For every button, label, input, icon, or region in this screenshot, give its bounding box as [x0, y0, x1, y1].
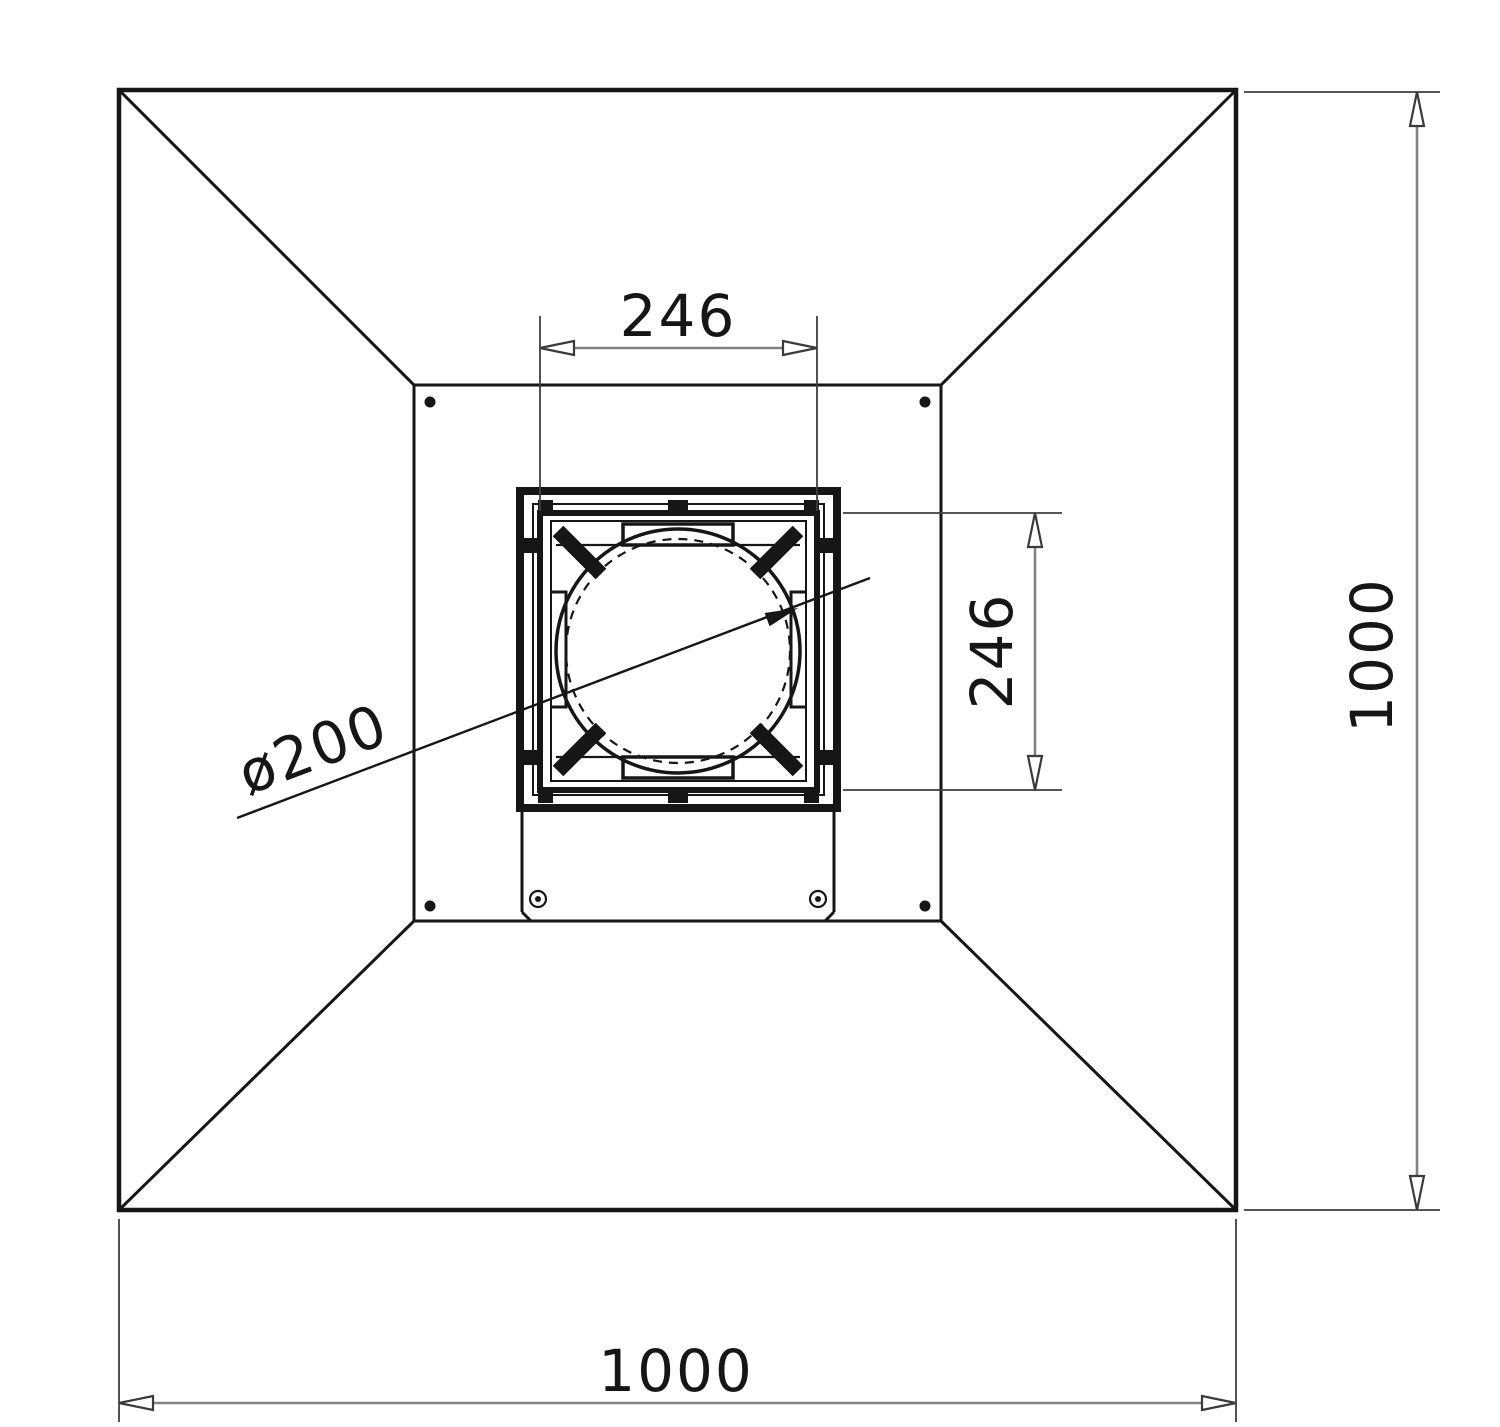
drawing-background: [0, 0, 1500, 1427]
neck-rivet-center: [815, 896, 821, 902]
clip-tab: [820, 538, 833, 553]
clip-tab: [820, 750, 833, 765]
clip-tab: [524, 538, 537, 553]
clip-tab-center-bottom: [668, 790, 688, 803]
dim-label-overall-width: 1000: [598, 1337, 754, 1405]
neck-rivet-center: [535, 896, 541, 902]
drawing-canvas: 246 246 1000 1000 ø200: [0, 0, 1500, 1427]
dim-label-overall-height: 1000: [1338, 577, 1406, 733]
clip-tab: [524, 750, 537, 765]
dim-label-inner-width: 246: [620, 282, 737, 350]
panel-screw-dot: [425, 397, 436, 408]
clip-tab-center-top: [668, 500, 688, 513]
panel-screw-dot: [425, 901, 436, 912]
dim-label-inner-height: 246: [958, 593, 1026, 710]
panel-screw-dot: [920, 901, 931, 912]
clip-tab: [538, 790, 553, 803]
technical-drawing: 246 246 1000 1000 ø200: [0, 0, 1500, 1427]
panel-screw-dot: [920, 397, 931, 408]
clip-tab: [804, 790, 819, 803]
